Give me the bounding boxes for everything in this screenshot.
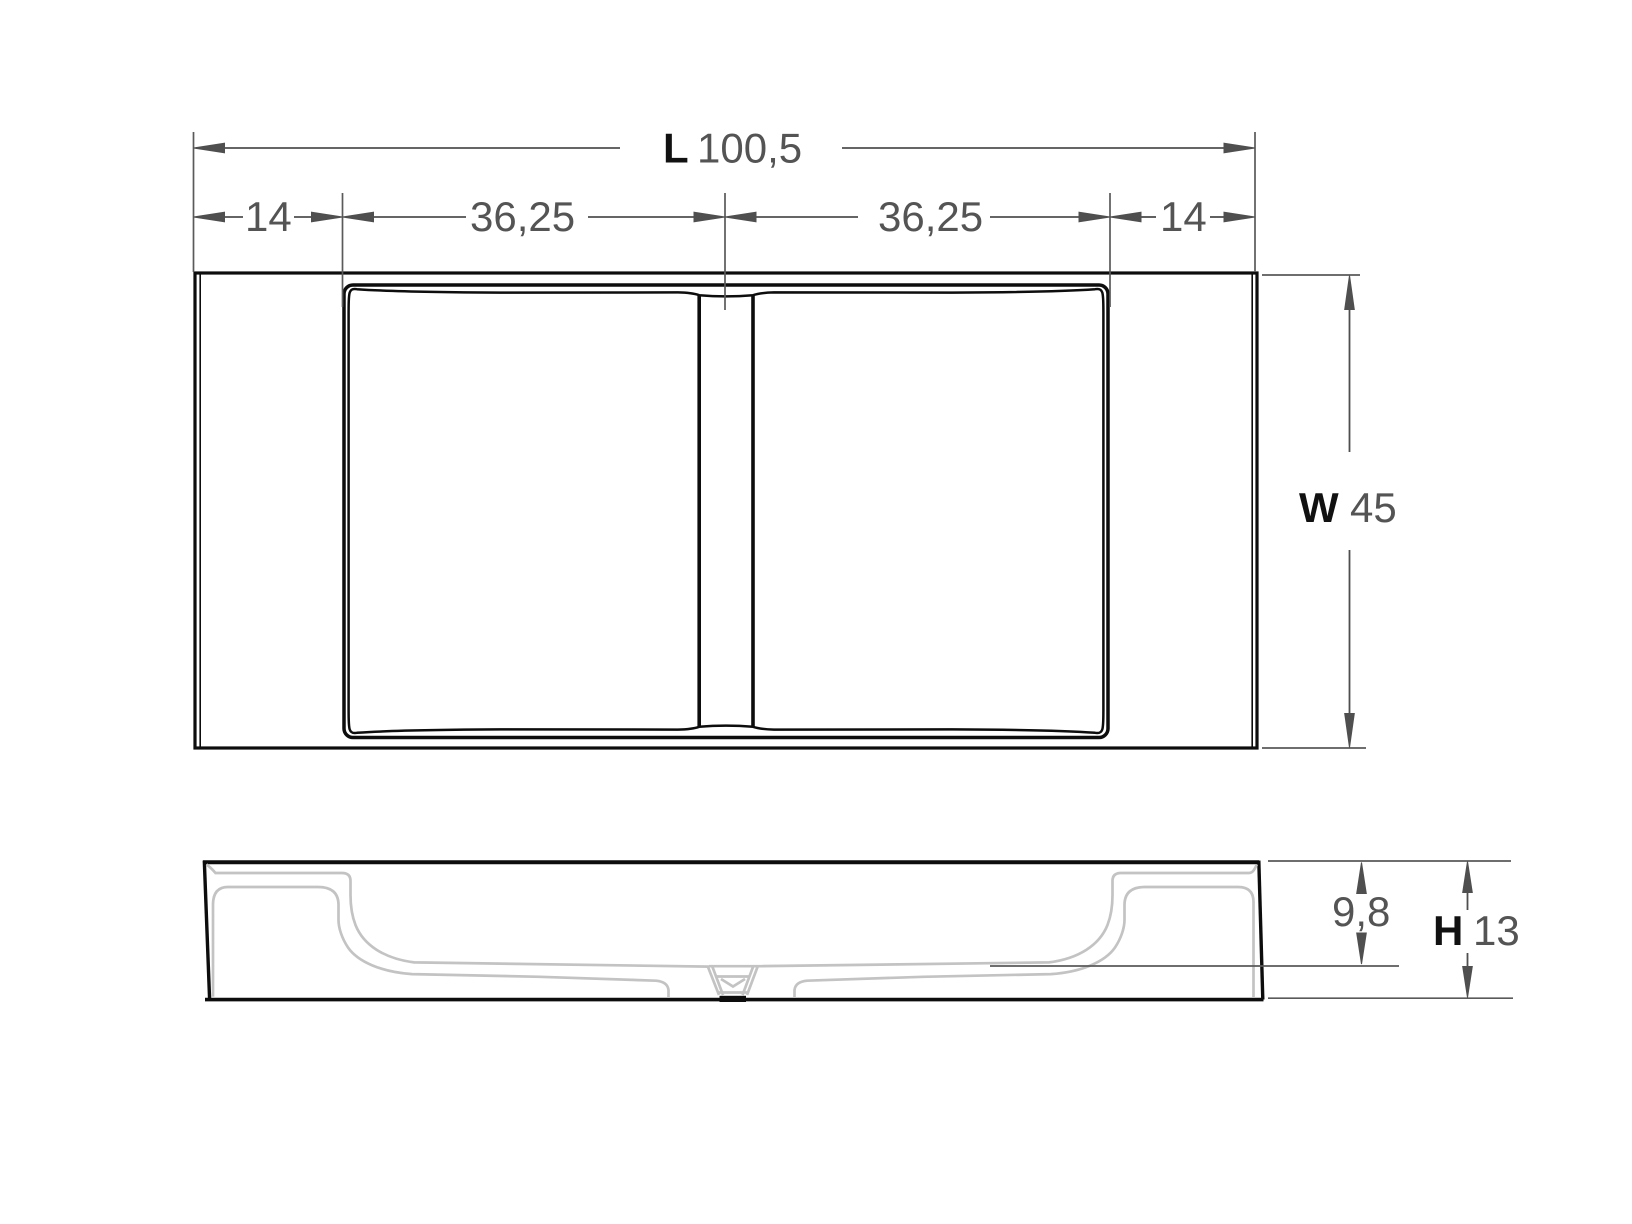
svg-text:13: 13 <box>1473 907 1520 954</box>
svg-text:9,8: 9,8 <box>1332 888 1390 935</box>
svg-text:H: H <box>1433 907 1463 954</box>
svg-text:100,5: 100,5 <box>697 125 802 172</box>
svg-text:36,25: 36,25 <box>470 193 575 240</box>
svg-text:45: 45 <box>1350 484 1397 531</box>
svg-text:14: 14 <box>245 193 292 240</box>
svg-text:W: W <box>1299 484 1339 531</box>
svg-text:L: L <box>663 125 689 172</box>
svg-text:14: 14 <box>1160 193 1207 240</box>
svg-text:36,25: 36,25 <box>878 193 983 240</box>
